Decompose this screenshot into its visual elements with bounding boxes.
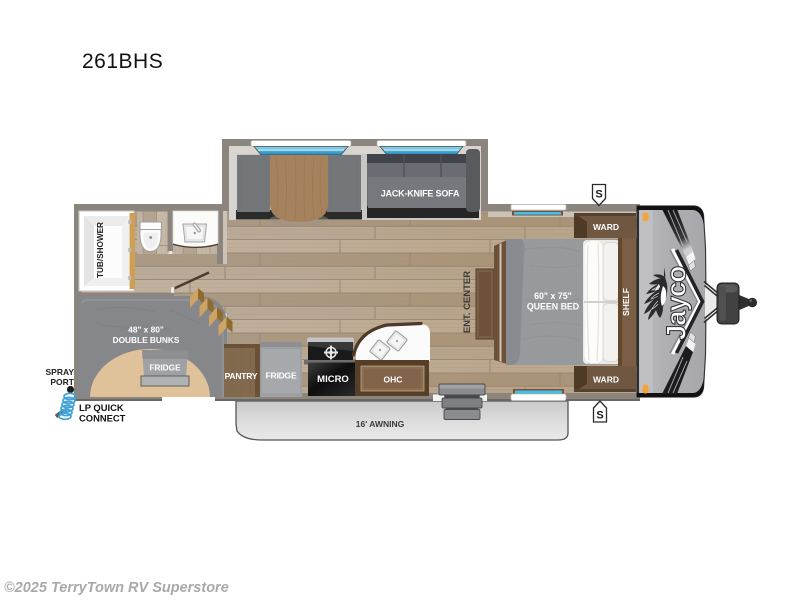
svg-text:16' AWNING: 16' AWNING [356, 419, 405, 429]
svg-text:FRIDGE: FRIDGE [149, 363, 181, 373]
svg-text:JACK-KNIFE SOFA: JACK-KNIFE SOFA [381, 189, 460, 199]
svg-text:SPRAY: SPRAY [45, 367, 74, 377]
svg-text:60" x 75": 60" x 75" [534, 291, 572, 301]
svg-text:S: S [595, 189, 602, 201]
svg-text:OHC: OHC [384, 375, 403, 385]
svg-text:LP QUICK: LP QUICK [79, 402, 124, 413]
svg-text:SHELF: SHELF [621, 288, 631, 316]
svg-text:48" x 80": 48" x 80" [128, 325, 164, 335]
svg-text:261BHS: 261BHS [82, 50, 163, 73]
svg-text:CONNECT: CONNECT [79, 413, 126, 424]
svg-text:Jayco: Jayco [661, 266, 692, 340]
svg-text:DOUBLE BUNKS: DOUBLE BUNKS [113, 335, 180, 345]
svg-text:WARD: WARD [593, 222, 619, 232]
svg-text:QUEEN BED: QUEEN BED [527, 302, 579, 312]
svg-text:FRIDGE: FRIDGE [266, 371, 297, 381]
svg-text:©2025 TerryTown RV Superstore: ©2025 TerryTown RV Superstore [4, 580, 229, 596]
svg-text:S: S [596, 410, 603, 422]
svg-text:TUB/SHOWER: TUB/SHOWER [96, 222, 105, 278]
svg-text:MICRO: MICRO [317, 374, 349, 385]
svg-text:PORT: PORT [50, 377, 74, 387]
svg-text:WARD: WARD [593, 375, 619, 385]
svg-text:PANTRY: PANTRY [225, 371, 258, 381]
svg-text:ENT. CENTER: ENT. CENTER [462, 271, 473, 333]
